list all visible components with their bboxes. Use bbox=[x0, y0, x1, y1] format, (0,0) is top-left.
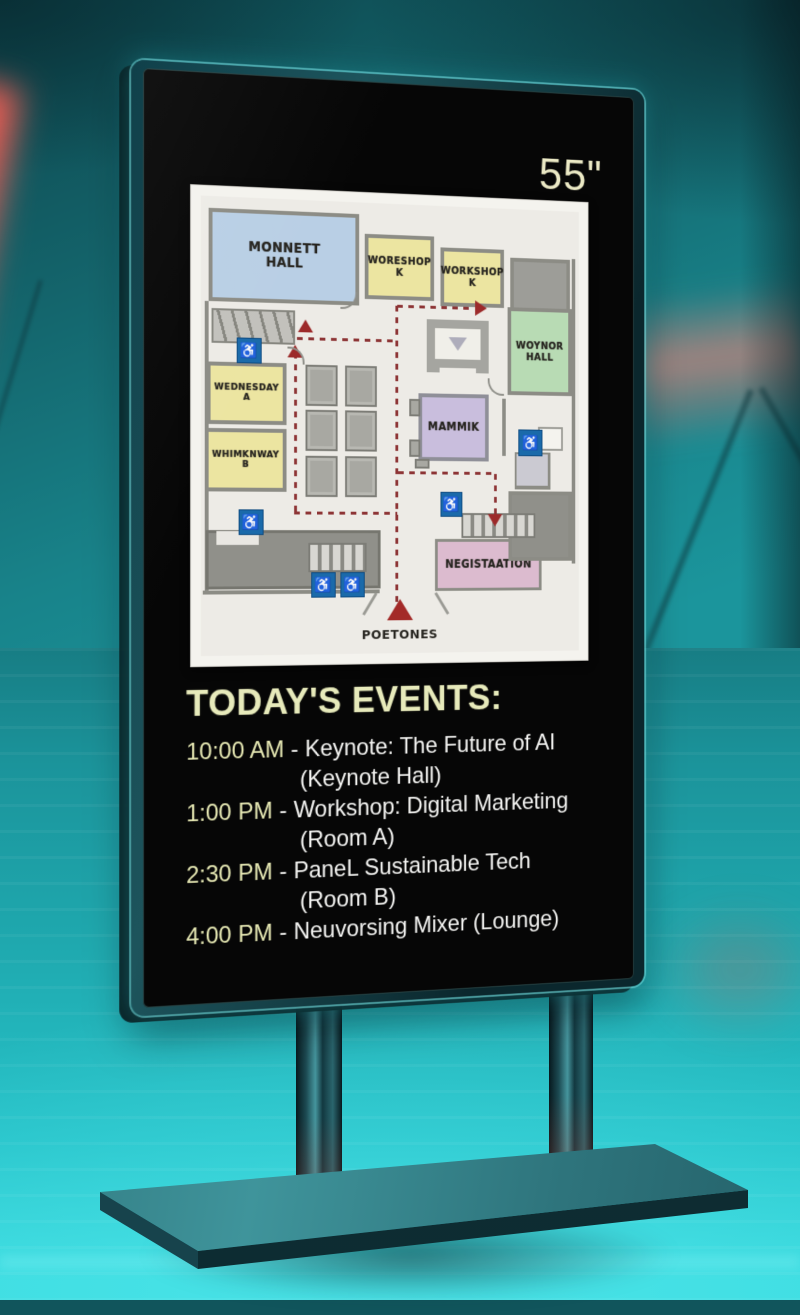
door-arc bbox=[488, 378, 504, 396]
event-title: Keynote: The Future of AI bbox=[305, 729, 555, 762]
room-gray-topright bbox=[510, 258, 570, 315]
route-path bbox=[297, 337, 396, 342]
accessibility-icon: ♿ bbox=[239, 509, 264, 535]
restroom-icon: ♿ bbox=[311, 572, 336, 598]
table bbox=[306, 456, 338, 497]
table bbox=[306, 365, 338, 407]
room-label: MAMMIK bbox=[428, 421, 479, 434]
kiosk-display: 55" MONNETT HALL WORESHOP K WORKSHOP K bbox=[143, 68, 634, 1008]
elevator-arrow-icon bbox=[449, 337, 467, 351]
route-arrow-icon bbox=[298, 319, 313, 332]
event-time: 2:30 PM bbox=[186, 859, 272, 889]
stand-post-right bbox=[549, 965, 593, 1175]
door-arc bbox=[340, 291, 357, 309]
restroom-stalls bbox=[308, 543, 366, 572]
route-arrow-icon bbox=[475, 300, 487, 316]
event-separator: - bbox=[279, 858, 287, 885]
room-label: WORESHOP K bbox=[368, 255, 431, 280]
restroom-icon: ♿ bbox=[340, 572, 364, 597]
room-label: WORKSHOP K bbox=[441, 265, 504, 290]
restroom-icon: ♿ bbox=[440, 492, 462, 517]
table bbox=[345, 366, 377, 407]
route-path bbox=[494, 474, 497, 516]
room-tab bbox=[409, 439, 420, 457]
room-label: WHIMKNWAY B bbox=[212, 449, 279, 471]
entrance-arrow-icon bbox=[387, 599, 413, 621]
room-keynote-hall: MONNETT HALL bbox=[209, 208, 360, 306]
room-center: MAMMIK bbox=[418, 393, 488, 461]
route-arrow-icon bbox=[488, 514, 502, 526]
map-wall bbox=[502, 399, 506, 456]
events-title: TODAY'S EVENTS: bbox=[186, 675, 622, 725]
events-section: TODAY'S EVENTS: 10:00 AM-Keynote: The Fu… bbox=[186, 675, 622, 953]
room-label: WOYNOR HALL bbox=[516, 340, 564, 364]
accessibility-icon: ♿ bbox=[237, 337, 262, 363]
route-path bbox=[294, 512, 397, 515]
route-path bbox=[398, 471, 495, 475]
entrance-wall bbox=[434, 592, 449, 615]
restroom-icon: ♿ bbox=[518, 429, 542, 456]
room-b: WHIMKNWAY B bbox=[205, 428, 287, 492]
map-wall bbox=[572, 259, 576, 564]
event-time: 4:00 PM bbox=[186, 920, 272, 951]
entrance-label: POETONES bbox=[344, 627, 455, 643]
table bbox=[306, 410, 338, 451]
event-time: 1:00 PM bbox=[186, 798, 272, 828]
room-a: WEDNESDAY A bbox=[207, 361, 287, 425]
storage-boxes bbox=[515, 452, 551, 489]
floor-plan-canvas: MONNETT HALL WORESHOP K WORKSHOP K WOYNO… bbox=[201, 196, 579, 657]
table bbox=[345, 410, 377, 451]
room-label: MONNETT HALL bbox=[249, 240, 321, 273]
room-workshop-1: WORESHOP K bbox=[365, 234, 434, 301]
table bbox=[345, 456, 377, 497]
event-separator: - bbox=[279, 797, 287, 824]
room-tab bbox=[415, 459, 430, 469]
elevator-foot bbox=[427, 362, 440, 373]
screen-size-label: 55" bbox=[539, 147, 603, 202]
room-label: WEDNESDAY A bbox=[214, 382, 279, 404]
event-time: 10:00 AM bbox=[186, 736, 284, 765]
venue-floor-plan: MONNETT HALL WORESHOP K WORKSHOP K WOYNO… bbox=[190, 184, 588, 667]
event-separator: - bbox=[291, 736, 299, 763]
event-separator: - bbox=[279, 919, 287, 946]
room-tab bbox=[409, 399, 420, 417]
route-path bbox=[294, 353, 297, 514]
red-glow-floor bbox=[650, 900, 800, 1040]
display-screen[interactable]: 55" MONNETT HALL WORESHOP K WORKSHOP K bbox=[143, 68, 634, 1008]
room-right-hall: WOYNOR HALL bbox=[508, 307, 572, 396]
room-workshop-2: WORKSHOP K bbox=[440, 247, 503, 308]
wall-shadow-right bbox=[740, 0, 800, 700]
route-path bbox=[395, 306, 398, 611]
elevator-foot bbox=[476, 363, 489, 374]
